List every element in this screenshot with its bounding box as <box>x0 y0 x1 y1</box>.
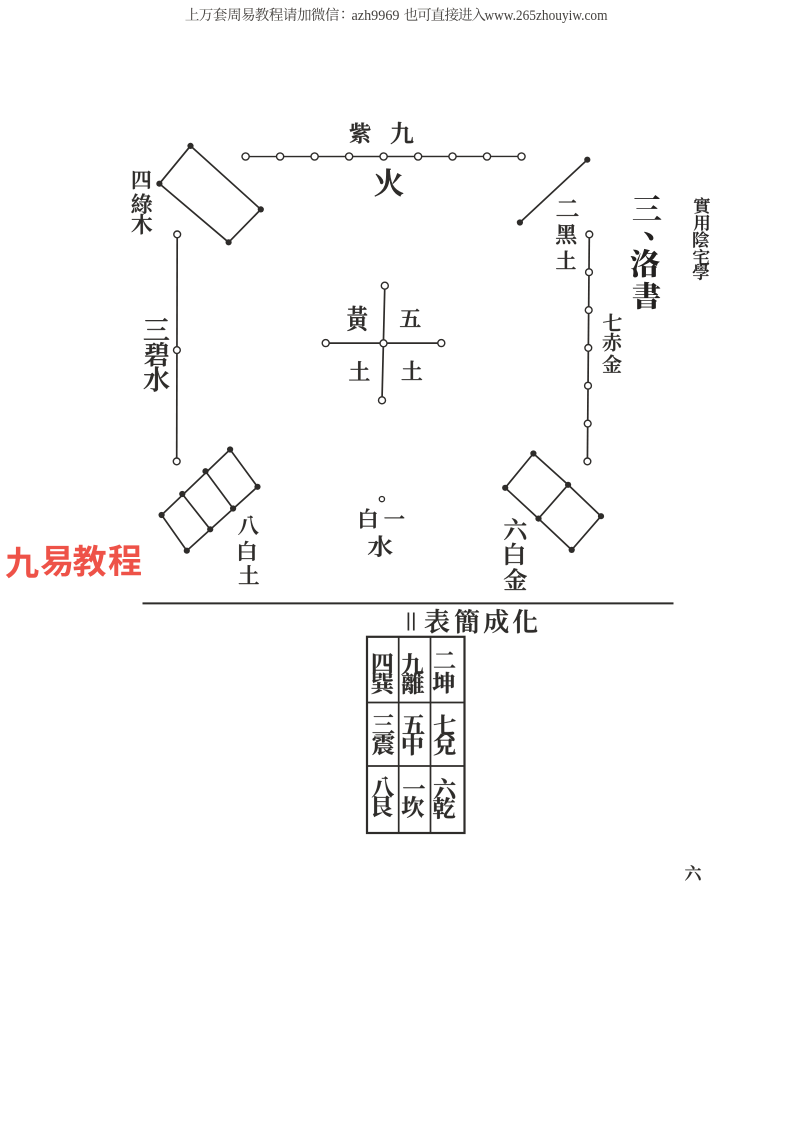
svg-text:www.265zhouyiw.com: www.265zhouyiw.com <box>485 8 609 24</box>
svg-text:azh9969: azh9969 <box>352 8 400 24</box>
